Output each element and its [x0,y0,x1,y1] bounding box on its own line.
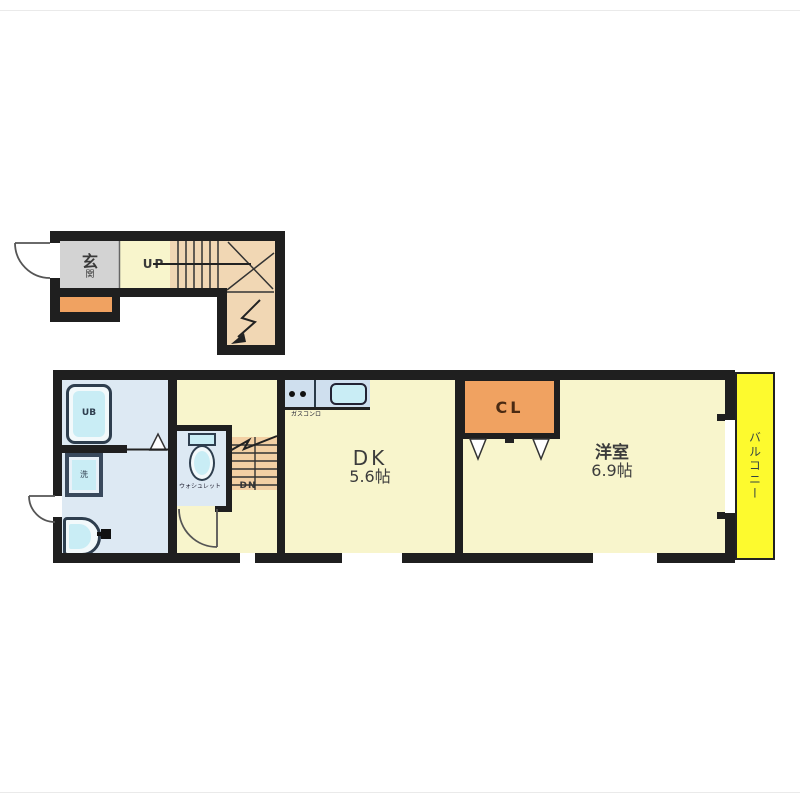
genkan-label: 玄 関 [76,246,104,288]
burner-icon-1 [289,391,295,397]
balcony-label: バルコニー [747,431,764,501]
f1-wall-top [50,231,285,241]
closet-inner: CL [465,381,554,433]
western-room-size: 6.9帖 [591,463,632,480]
burner-icon-2 [300,391,306,397]
page-divider-bottom [0,792,800,793]
balcony-area: バルコニー [735,372,775,560]
cl-label: CL [496,398,524,417]
f2-wall-right-b [725,513,735,563]
closet: CL [459,374,560,439]
western-room-name: 洋室 [595,445,629,463]
f2-wall-bath [62,445,127,453]
f2-wall-bottom-c [402,553,593,563]
f1-wall-mid [60,288,227,297]
washer-label: 洗 [69,457,99,493]
closet-door-stop [505,439,514,443]
floorplan-image: 玄 関 UP バルコニー UB 洗 [0,0,800,800]
page-divider-top [0,10,800,11]
f1-wall-bottom-left [50,312,120,322]
window-tick-bottom [717,512,725,519]
bathtub-icon: UB [66,384,112,444]
stairs-winder-area [227,241,275,345]
f2-wall-dk-room [455,380,463,553]
f1-wall-left-a [50,231,60,243]
toilet-bowl-icon [189,445,215,481]
toilet-note: ウォシュレット [170,482,230,492]
dk-size: 5.6帖 [349,469,390,486]
western-room-label: 洋室 6.9帖 [567,436,657,488]
entrance-door-swing-icon [15,243,50,278]
f2-wall-left-a [53,370,62,496]
entrance-step [60,297,112,312]
f2-wall-hall-dk [277,380,285,553]
ub-label: UB [69,387,109,441]
toilet-doorway [177,506,215,512]
sink-basin-icon [63,517,101,556]
dk-label: DK 5.6帖 [325,443,415,491]
f2-wall-bottom-a [53,553,240,563]
dk-name: DK [353,448,388,469]
kitchen-counter [285,380,370,410]
genkan-label-char1: 玄 [82,254,98,271]
washroom-door-swing-icon [29,496,55,522]
counter-divider [314,380,316,407]
kitchen-sink-icon [330,383,367,405]
toilet-bowl-inner [194,451,210,475]
f2-wall-bottom-b [255,553,342,563]
up-label: UP [138,256,170,272]
window-tick-top [717,414,725,421]
dn-label: DN [235,481,261,493]
stairs-up-area [170,241,227,288]
f2-wall-top [53,370,735,380]
faucet-stub [97,532,101,536]
f2-wall-washroom [168,380,177,553]
washer-icon: 洗 [65,453,103,497]
sink-basin-inner [69,524,91,549]
genkan-label-char2: 関 [85,271,94,280]
f1-wall-notch [217,288,227,352]
f2-wall-bottom-d [657,553,735,563]
kitchen-note: ガスコンロ [277,411,335,420]
f2-wall-right-a [725,370,735,420]
faucet-icon [101,529,111,539]
f1-wall-right [275,231,285,355]
